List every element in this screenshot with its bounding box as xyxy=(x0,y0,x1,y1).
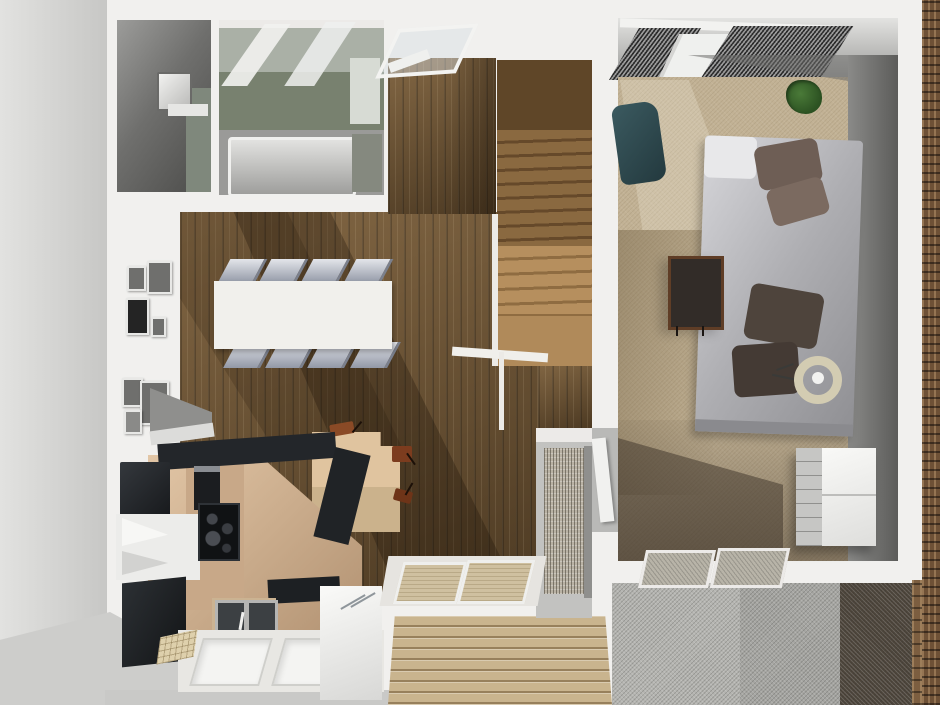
stair-railing-post xyxy=(499,352,504,430)
brick-wall-edge xyxy=(922,0,940,705)
bathroom-wall-sill xyxy=(219,20,384,28)
dining-table xyxy=(214,281,392,349)
wood-floor-by-stairs xyxy=(538,362,592,428)
picture-frame xyxy=(126,298,149,335)
pillow xyxy=(731,341,800,397)
bedroom-window-mat xyxy=(638,550,716,588)
picture-frame xyxy=(151,317,166,337)
floor-fan-hub xyxy=(812,372,824,384)
gravel-patio-dark xyxy=(840,583,916,705)
wardrobe-panel-line xyxy=(822,494,876,496)
louvered-closet-door xyxy=(544,448,584,594)
hallway-shadow xyxy=(388,58,496,214)
refrigerator xyxy=(120,462,170,518)
stair-stringer xyxy=(492,214,498,366)
stairs-lower-flight xyxy=(497,246,592,316)
bathtub xyxy=(228,137,356,197)
bathtub-side-cabinet xyxy=(352,134,382,192)
desk-leg xyxy=(702,326,704,336)
louvered-closet-side xyxy=(584,446,592,598)
picture-frame xyxy=(147,261,172,294)
stairs-upper-flight xyxy=(497,130,592,246)
gravel-patio-medium xyxy=(740,583,840,705)
exterior-ground-left xyxy=(0,0,107,705)
desk xyxy=(668,256,724,330)
picture-frame xyxy=(127,266,146,291)
potted-plant xyxy=(786,80,822,114)
gravel-patio-light xyxy=(612,583,740,705)
window-pane xyxy=(189,638,273,686)
stair-top-landing xyxy=(497,60,592,132)
wood-deck xyxy=(388,616,612,705)
bathroom-vanity xyxy=(350,58,380,124)
pillow xyxy=(743,282,826,350)
floorplan-render xyxy=(0,0,940,705)
mattress-corner xyxy=(704,135,757,179)
picture-frame xyxy=(124,410,142,434)
bedroom-window-mat xyxy=(710,548,791,588)
washer-ledge xyxy=(168,104,208,116)
wardrobe-front xyxy=(796,448,822,546)
doormat xyxy=(393,562,467,604)
doormat xyxy=(457,560,536,604)
desk-leg xyxy=(676,326,678,336)
cooktop xyxy=(198,503,240,561)
